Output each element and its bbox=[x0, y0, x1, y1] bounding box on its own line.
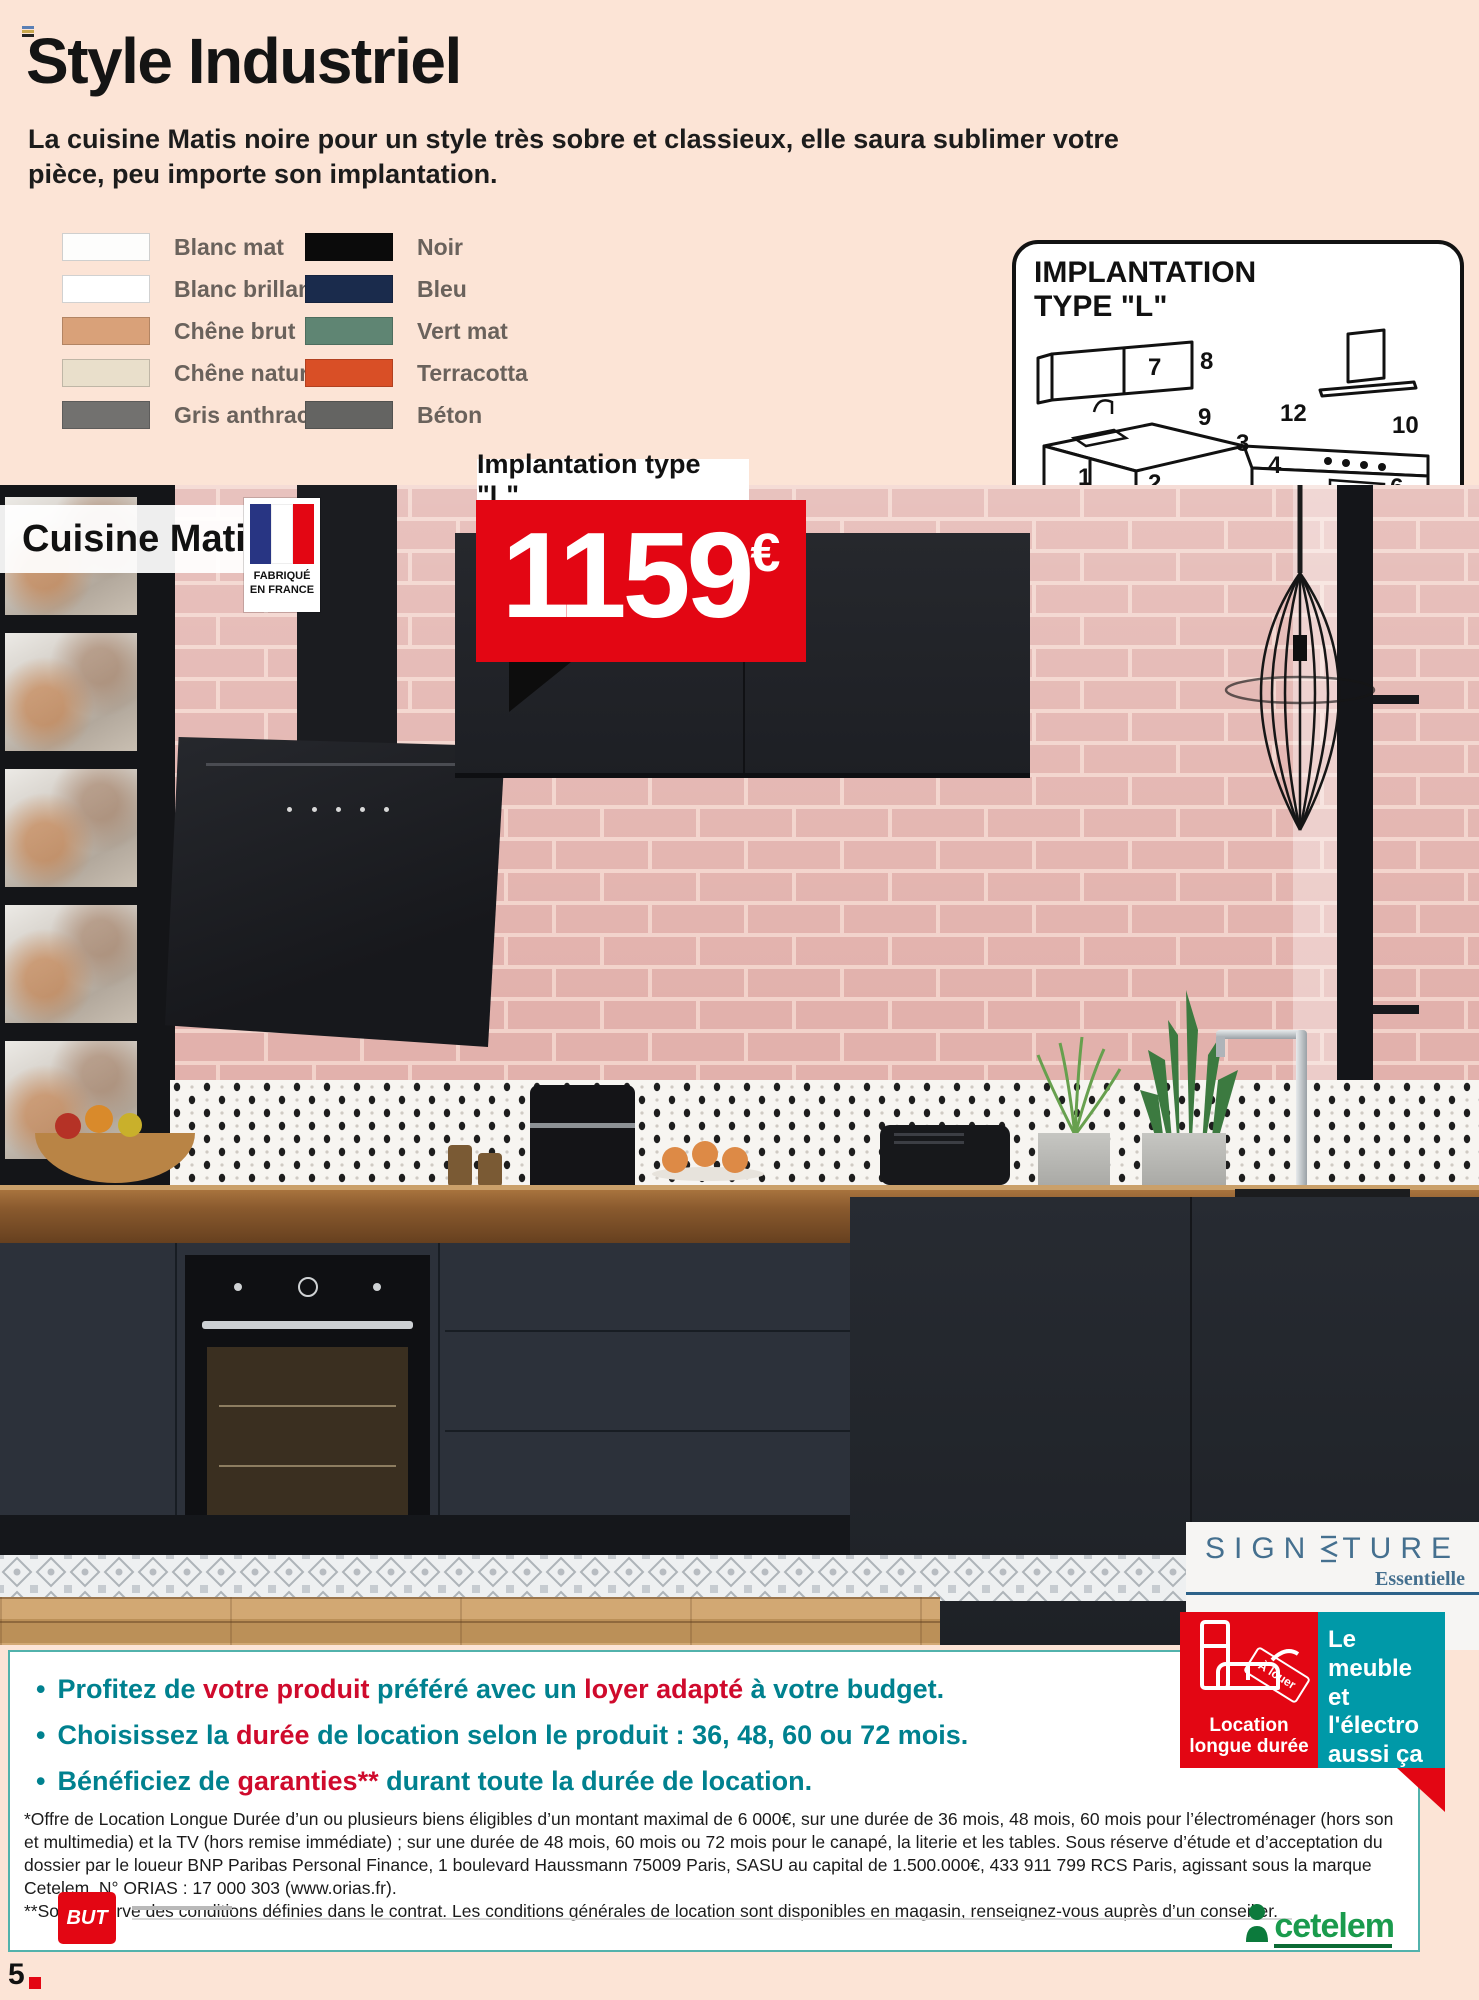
cetelem-tagline bbox=[1274, 1944, 1392, 1948]
built-in-oven bbox=[185, 1255, 430, 1545]
unit-number: 9 bbox=[1198, 404, 1211, 432]
base-cabinets bbox=[0, 1243, 850, 1555]
color-swatch bbox=[62, 401, 150, 429]
coffee-machine bbox=[530, 1085, 635, 1185]
signature-a-icon bbox=[1316, 1534, 1340, 1564]
unit-number: 10 bbox=[1392, 412, 1419, 440]
price-badge: 1159 € bbox=[476, 500, 806, 662]
drawer-seam bbox=[445, 1330, 850, 1332]
legal-paragraph-1: *Offre de Location Longue Durée d’un ou … bbox=[24, 1808, 1408, 1900]
but-logo: BUT bbox=[58, 1892, 116, 1944]
swatch-label: Terracotta bbox=[417, 360, 528, 387]
pendant-lamp bbox=[1180, 485, 1420, 975]
extractor-hood bbox=[165, 737, 505, 1047]
plinth bbox=[0, 1515, 850, 1555]
window-pane bbox=[5, 905, 137, 1023]
signature-subtitle: Essentielle bbox=[1375, 1568, 1465, 1591]
made-in-france-badge: FABRIQUÉ EN FRANCE bbox=[244, 498, 320, 612]
rental-badge-teal: Le meuble et l'électro aussi ça se loue* bbox=[1318, 1612, 1445, 1768]
toaster bbox=[880, 1125, 1010, 1185]
oven-rack bbox=[219, 1405, 396, 1407]
color-swatch bbox=[62, 233, 150, 261]
color-swatch bbox=[305, 317, 393, 345]
oven-handle bbox=[202, 1321, 413, 1329]
jar bbox=[478, 1153, 502, 1187]
swatch-row: Chêne naturel bbox=[62, 359, 336, 387]
left-window bbox=[0, 485, 175, 1190]
color-swatch bbox=[305, 275, 393, 303]
cetelem-icon bbox=[1240, 1902, 1274, 1942]
window-pane bbox=[5, 769, 137, 887]
swatch-row: Bleu bbox=[305, 275, 528, 303]
wood-floor bbox=[0, 1597, 940, 1645]
tile-backsplash bbox=[170, 1080, 1479, 1190]
cabinet-seam bbox=[175, 1243, 177, 1555]
faucet-tip bbox=[1216, 1037, 1225, 1057]
oven-controls bbox=[234, 1277, 381, 1297]
oven-rack bbox=[219, 1465, 396, 1467]
fine-print-micro-text bbox=[132, 1906, 232, 1910]
unit-number: 4 bbox=[1268, 452, 1281, 480]
swatch-label: Béton bbox=[417, 402, 482, 429]
bullet-item: •Profitez de votre produit préféré avec … bbox=[36, 1666, 1156, 1712]
frame-rung bbox=[1373, 1005, 1419, 1014]
cabinet-bottom-edge bbox=[455, 773, 1030, 778]
color-swatch bbox=[305, 359, 393, 387]
unit-number: 7 bbox=[1148, 354, 1161, 382]
hood-controls bbox=[287, 807, 389, 812]
page-title: Style Industriel bbox=[26, 24, 461, 98]
swatch-row: Blanc mat bbox=[62, 233, 336, 261]
made-in-france-label: FABRIQUÉ EN FRANCE bbox=[244, 570, 320, 598]
swatch-row: Béton bbox=[305, 401, 528, 429]
implantation-title: IMPLANTATION TYPE "L" bbox=[1034, 256, 1256, 323]
color-swatch-column-right: Noir Bleu Vert mat Terracotta Béton bbox=[305, 233, 528, 443]
swatch-row: Blanc brillant bbox=[62, 275, 336, 303]
page-subtitle: La cuisine Matis noire pour un style trè… bbox=[28, 122, 1188, 191]
rental-badge-red: À louer Location longue durée bbox=[1180, 1612, 1318, 1768]
swatch-label: Noir bbox=[417, 234, 463, 261]
price-currency: € bbox=[750, 526, 780, 580]
swatch-label: Chêne brut bbox=[174, 318, 295, 345]
cetelem-logo: cetelem bbox=[1240, 1902, 1394, 1942]
swatch-label: Vert mat bbox=[417, 318, 508, 345]
drawer-seam bbox=[445, 1430, 850, 1432]
swatch-row: Terracotta bbox=[305, 359, 528, 387]
swatch-label: Blanc brillant bbox=[174, 276, 320, 303]
faucet-spout bbox=[1216, 1030, 1306, 1039]
swatch-row: Vert mat bbox=[305, 317, 528, 345]
bullet-item: •Bénéficiez de garanties** durant toute … bbox=[36, 1758, 1156, 1804]
signature-logo: SIGN TURE bbox=[1196, 1532, 1469, 1566]
color-swatch bbox=[305, 401, 393, 429]
unit-number: 8 bbox=[1200, 348, 1213, 376]
signature-text-right: TURE bbox=[1342, 1532, 1460, 1566]
color-swatch bbox=[62, 317, 150, 345]
bullet-item: •Choisissez la durée de location selon l… bbox=[36, 1712, 1156, 1758]
rental-badge-label: Location longue durée bbox=[1180, 1716, 1318, 1758]
color-swatch bbox=[62, 359, 150, 387]
legal-paragraph-2: **Sous réserve des conditions définies d… bbox=[24, 1900, 1408, 1923]
catalog-page: Style Industriel La cuisine Matis noire … bbox=[0, 0, 1479, 2000]
color-swatch bbox=[305, 233, 393, 261]
jar bbox=[448, 1145, 472, 1187]
swatch-row: Noir bbox=[305, 233, 528, 261]
cabinet-seam bbox=[438, 1243, 440, 1555]
footer-rule bbox=[132, 1918, 1292, 1920]
french-flag-icon bbox=[250, 504, 314, 564]
offer-bullets: •Profitez de votre produit préféré avec … bbox=[36, 1666, 1156, 1804]
signature-text-left: SIGN bbox=[1205, 1532, 1314, 1566]
window-pane bbox=[5, 633, 137, 751]
unit-number: 3 bbox=[1236, 430, 1249, 458]
swatch-label: Blanc mat bbox=[174, 234, 284, 261]
color-swatch-column-left: Blanc mat Blanc brillant Chêne brut Chên… bbox=[62, 233, 336, 443]
oven-door-glass bbox=[207, 1347, 408, 1525]
page-number: 5 bbox=[8, 1958, 41, 1992]
cetelem-text: cetelem bbox=[1274, 1911, 1394, 1942]
price-value: 1159 bbox=[502, 500, 751, 650]
hood-trim bbox=[206, 763, 458, 766]
signature-underline bbox=[1186, 1592, 1479, 1595]
implantation-type-strip: Implantation type "L" bbox=[477, 459, 749, 500]
swatch-row: Chêne brut bbox=[62, 317, 336, 345]
color-swatch bbox=[62, 275, 150, 303]
swatch-row: Gris anthracite bbox=[62, 401, 336, 429]
unit-number: 12 bbox=[1280, 400, 1307, 428]
faucet-body bbox=[1296, 1030, 1307, 1188]
page-number-marker bbox=[29, 1977, 41, 1989]
swatch-label: Bleu bbox=[417, 276, 467, 303]
